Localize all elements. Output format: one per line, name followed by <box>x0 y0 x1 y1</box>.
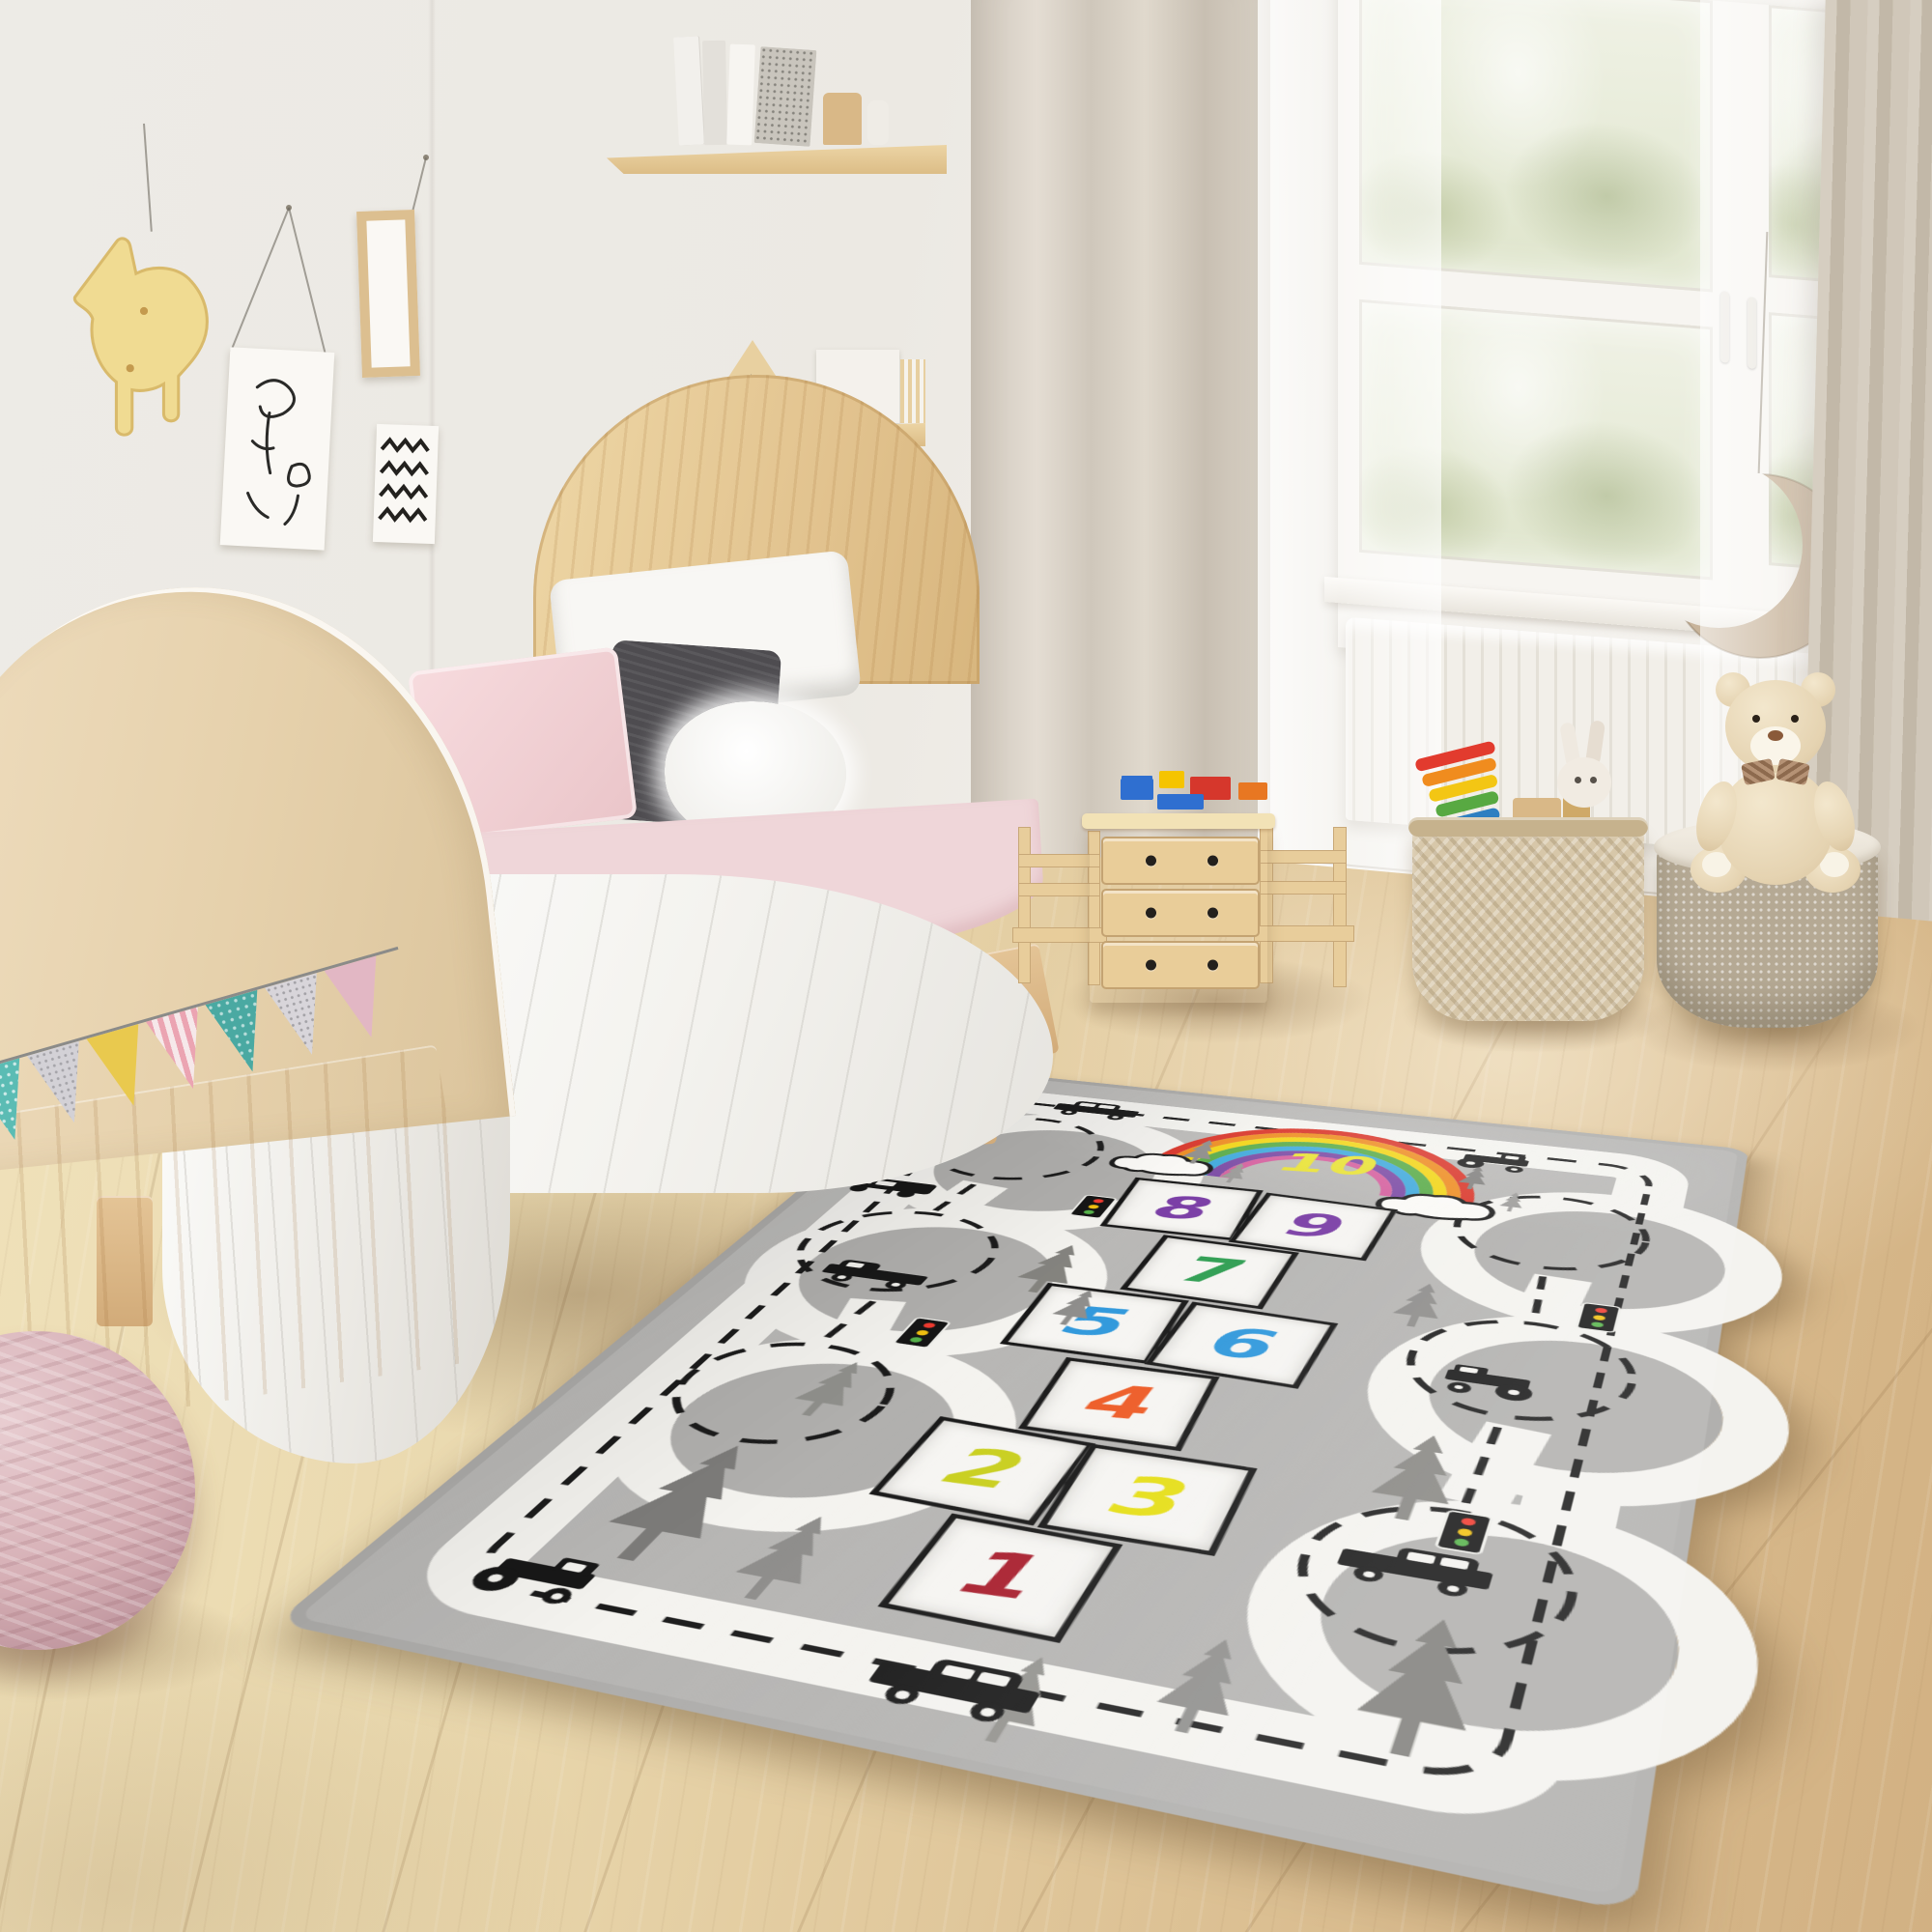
drawer-knob <box>1146 856 1156 867</box>
wall-frame <box>356 210 420 378</box>
drawer <box>1101 837 1260 885</box>
teddy-bear <box>1689 676 1862 900</box>
drawer <box>1101 941 1260 989</box>
chair-slat <box>1018 883 1100 896</box>
drawer-knob <box>1207 960 1218 971</box>
bunting-flag <box>205 990 278 1079</box>
drawer-knob <box>1207 856 1218 867</box>
bunny-eye <box>1590 777 1597 783</box>
drawer-knob <box>1146 960 1156 971</box>
teddy-body <box>1718 767 1833 885</box>
dresser <box>1090 823 1267 1003</box>
basket-weave <box>1412 823 1644 1021</box>
teddy-eye <box>1791 715 1799 723</box>
bunny-eye <box>1575 777 1581 783</box>
lego-brick-orange <box>1238 782 1267 800</box>
unicorn-decor <box>56 220 230 452</box>
chair-seat <box>1254 925 1354 942</box>
shelf-comb-toy <box>900 359 925 423</box>
bedroom-photo: 10 8 9 7 5 6 4 2 3 1 <box>0 0 1932 1932</box>
drawer-knob <box>1146 908 1156 919</box>
teddy-nose <box>1768 730 1783 741</box>
bunting-flag <box>146 1007 219 1095</box>
chair-slat <box>1260 850 1347 864</box>
teddy-eye <box>1752 715 1760 723</box>
drawer <box>1101 889 1260 937</box>
chair-slat <box>1260 881 1347 895</box>
book <box>726 44 755 146</box>
chair-post <box>1018 827 1031 983</box>
toy-basket <box>1412 823 1644 1021</box>
shelf-vase <box>867 100 889 145</box>
book <box>702 41 727 145</box>
bunting-flag <box>325 955 398 1044</box>
basket-rim <box>1408 817 1648 837</box>
bunting-flag <box>0 1058 41 1147</box>
chair-slat <box>1018 854 1100 867</box>
chevron-card <box>373 424 439 544</box>
bunny-head <box>1557 757 1611 808</box>
lego-brick-blue <box>1121 779 1153 800</box>
wall-drawing <box>220 347 335 550</box>
lego-brick-blue <box>1157 794 1204 810</box>
patterned-book <box>754 46 817 147</box>
bunting-flag <box>27 1041 100 1130</box>
lego-brick-yellow <box>1159 771 1184 788</box>
bunting-flag <box>86 1024 159 1113</box>
dresser-top <box>1082 813 1275 829</box>
bunting-flag <box>265 973 338 1062</box>
drawer-knob <box>1207 908 1218 919</box>
shelf-toy <box>823 93 862 145</box>
